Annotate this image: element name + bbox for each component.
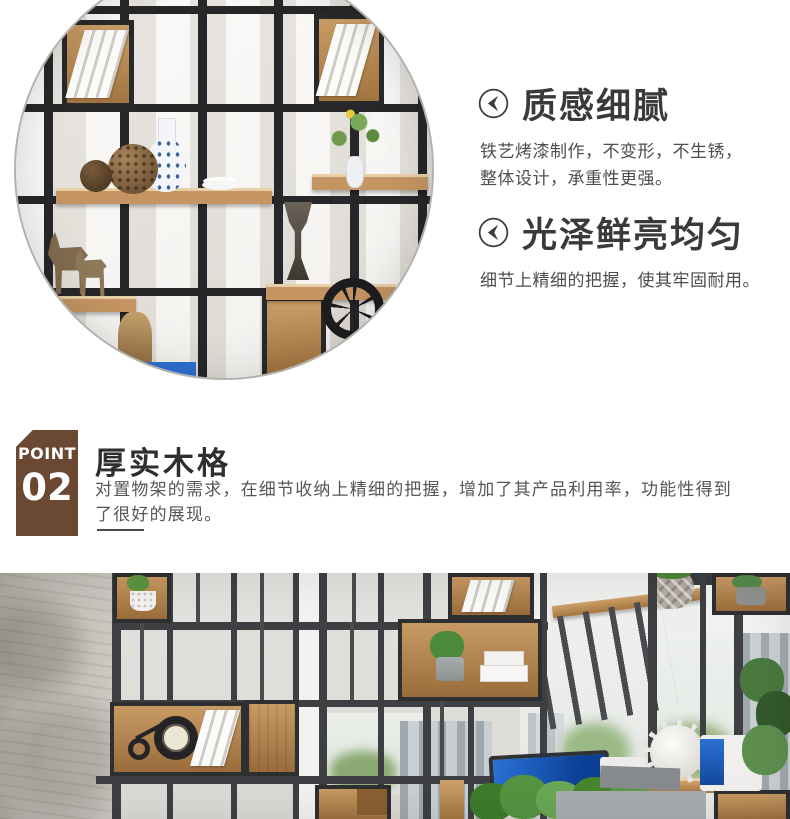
divider-line [97, 529, 144, 531]
feature-heading-row: 光泽鲜亮均匀 [478, 207, 790, 258]
feature-description: 细节上精细的把握，使其牢固耐用。 [480, 268, 790, 295]
point-badge-label: POINT [16, 444, 78, 463]
circle-back-arrow-icon [478, 88, 509, 119]
office-scene-banner-photo [0, 573, 790, 819]
point-title: 厚实木格 [95, 438, 231, 483]
point-description: 对置物架的需求，在细节收纳上精细的把握，增加了其产品利用率，功能性得到了很好的展… [95, 478, 743, 528]
feature-item-texture: 质感细腻 铁艺烤漆制作，不变形，不生锈，整体设计，承重性更强。 [478, 78, 790, 193]
feature-heading-row: 质感细腻 [478, 78, 790, 129]
circle-back-arrow-icon [478, 217, 509, 248]
feature-description: 铁艺烤漆制作，不变形，不生锈，整体设计，承重性更强。 [480, 139, 750, 193]
feature-item-gloss: 光泽鲜亮均匀 细节上精细的把握，使其牢固耐用。 [478, 207, 790, 295]
feature-title: 光泽鲜亮均匀 [522, 207, 744, 258]
photo-vignette [0, 573, 790, 819]
product-detail-page: 质感细腻 铁艺烤漆制作，不变形，不生锈，整体设计，承重性更强。 光泽鲜亮均匀 细… [0, 0, 790, 819]
point-badge-number: 02 [16, 469, 78, 506]
feature-title: 质感细腻 [522, 78, 670, 129]
point-badge: POINT 02 [16, 430, 78, 536]
hero-shelf-circle-photo [14, 0, 434, 380]
